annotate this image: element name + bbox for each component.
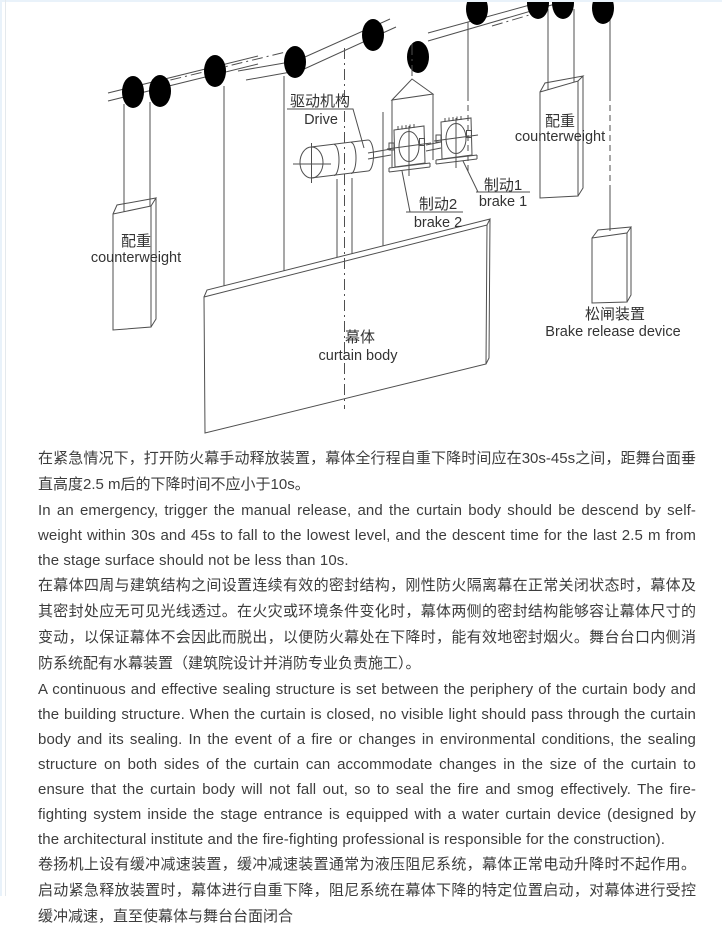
label-curtain-cn: 幕体 — [345, 329, 375, 346]
label-brake1-cn: 制动1 — [484, 177, 522, 194]
paragraph-cn-damper-system: 卷扬机上设有缓冲减速装置，缓冲减速装置通常为液压阻尼系统，幕体正常电动升降时不起… — [38, 852, 696, 930]
label-brake-release-en: Brake release device — [545, 324, 680, 340]
label-brake2-en: brake 2 — [414, 215, 462, 231]
label-curtain-en: curtain body — [319, 348, 399, 364]
page-edge-top — [0, 0, 722, 2]
label-drive-cn: 驱动机构 — [290, 93, 350, 110]
label-brake2-cn: 制动2 — [419, 196, 457, 213]
label-counterweight-left-en: counterweight — [91, 250, 181, 266]
fire-curtain-system-diagram: 驱动机构 Drive 配重 counterweight 配重 counterwe… — [0, 0, 722, 442]
label-counterweight-left-cn: 配重 — [121, 233, 151, 250]
body-text: 在紧急情况下，打开防火幕手动释放装置，幕体全行程自重下降时间应在30s-45s之… — [0, 442, 722, 930]
label-brake-release-cn: 松闸装置 — [585, 306, 645, 323]
diagram-linework — [108, 0, 631, 433]
pulley-icons — [116, 0, 620, 113]
paragraph-cn-emergency-release: 在紧急情况下，打开防火幕手动释放装置，幕体全行程自重下降时间应在30s-45s之… — [38, 446, 696, 498]
paragraph-cn-sealing-structure: 在幕体四周与建筑结构之间设置连续有效的密封结构，刚性防火隔离幕在正常关闭状态时，… — [38, 573, 696, 677]
label-counterweight-right-en: counterweight — [515, 129, 605, 145]
paragraph-en-sealing-structure: A continuous and effective sealing struc… — [38, 677, 696, 852]
paragraph-en-emergency-release: In an emergency, trigger the manual rele… — [38, 498, 696, 573]
label-counterweight-right-cn: 配重 — [545, 113, 575, 130]
label-drive-en: Drive — [304, 112, 338, 128]
label-brake1-en: brake 1 — [479, 194, 527, 210]
